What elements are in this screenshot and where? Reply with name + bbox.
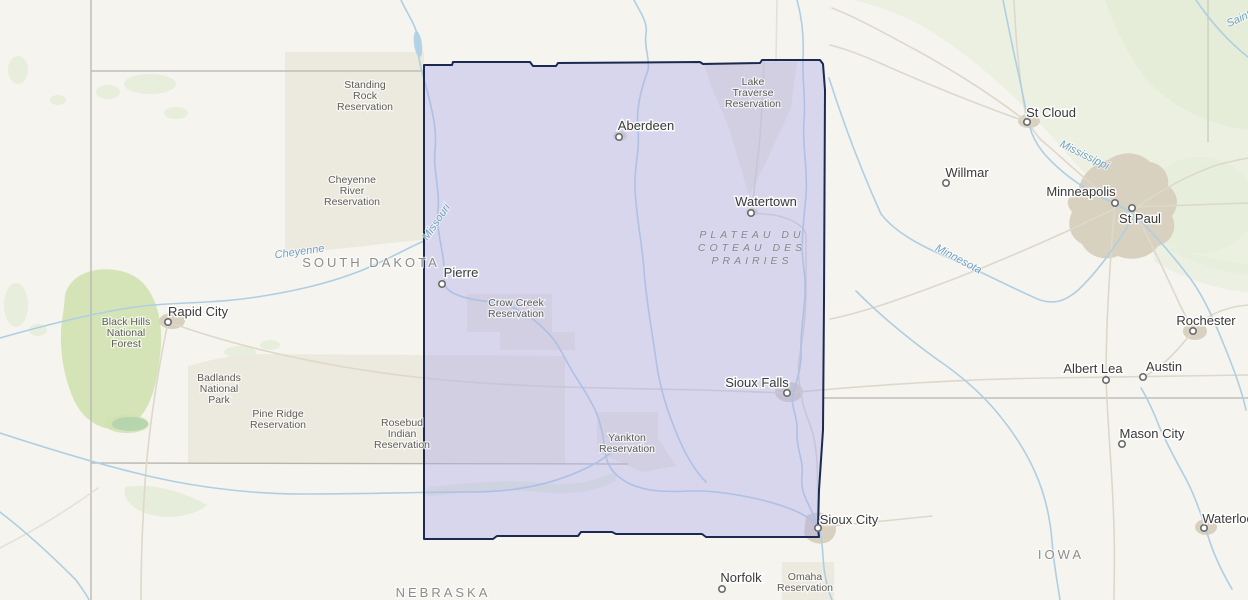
city-label-pierre: Pierre <box>444 265 479 280</box>
city-marker-rochester <box>1190 328 1196 334</box>
state-label-iowa: IOWA <box>1038 547 1084 562</box>
city-label-waterloo: Waterloo <box>1202 511 1248 526</box>
state-label-nebraska: NEBRASKA <box>396 585 491 600</box>
city-label-albert-lea: Albert Lea <box>1063 361 1123 376</box>
city-label-st-paul: St Paul <box>1119 211 1161 226</box>
city-label-rapid-city: Rapid City <box>168 304 228 319</box>
plateau-du-coteau-label: PLATEAU DUCOTEAU DESPRAIRIES <box>698 229 806 267</box>
city-marker-willmar <box>943 180 949 186</box>
city-marker-rapid-city <box>165 319 171 325</box>
crow-creek-reservation-label: Crow CreekReservation <box>488 297 544 320</box>
city-marker-austin <box>1140 374 1146 380</box>
city-marker-mason-city <box>1119 441 1125 447</box>
city-label-sioux-city: Sioux City <box>820 512 879 527</box>
city-marker-watertown <box>748 210 754 216</box>
city-label-rochester: Rochester <box>1176 313 1236 328</box>
map-canvas[interactable]: CheyenneMissouriMinnesotaMississippiSain… <box>0 0 1248 600</box>
city-marker-pierre <box>439 281 445 287</box>
map-viewport[interactable]: CheyenneMissouriMinnesotaMississippiSain… <box>0 0 1248 600</box>
city-label-minneapolis: Minneapolis <box>1046 184 1116 199</box>
city-marker-sioux-falls <box>784 390 790 396</box>
city-label-norfolk: Norfolk <box>720 570 762 585</box>
city-label-st-cloud: St Cloud <box>1026 105 1076 120</box>
city-label-aberdeen: Aberdeen <box>618 118 674 133</box>
city-marker-norfolk <box>719 586 725 592</box>
city-label-sioux-falls: Sioux Falls <box>725 375 789 390</box>
city-marker-minneapolis <box>1112 200 1118 206</box>
city-label-mason-city: Mason City <box>1119 426 1185 441</box>
pine-ridge-reservation-label: Pine RidgeReservation <box>250 408 306 431</box>
city-label-willmar: Willmar <box>945 165 989 180</box>
city-label-austin: Austin <box>1146 359 1182 374</box>
city-marker-albert-lea <box>1103 377 1109 383</box>
city-label-watertown: Watertown <box>735 194 797 209</box>
state-label-south-dakota: SOUTH DAKOTA <box>302 255 440 270</box>
city-marker-aberdeen <box>616 134 622 140</box>
